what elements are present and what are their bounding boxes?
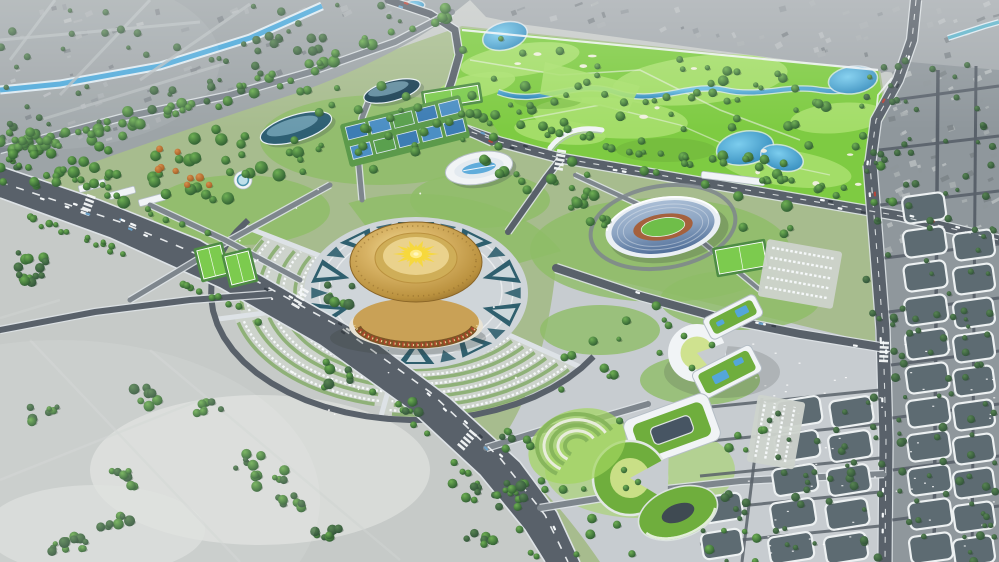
- city-block: [700, 528, 744, 560]
- city-block: [769, 497, 817, 531]
- vehicle: [881, 397, 883, 402]
- city-block: [952, 229, 995, 261]
- vehicle: [882, 513, 884, 518]
- city-block: [952, 433, 995, 465]
- city-block: [905, 362, 950, 395]
- aerial-render-stage: Aerial 3D architectural rendering of a s…: [0, 0, 999, 562]
- sand-bunker: [761, 149, 767, 153]
- vehicle: [869, 192, 872, 197]
- vehicle: [882, 529, 884, 534]
- city-block: [827, 429, 873, 462]
- vehicle: [885, 349, 887, 354]
- city-block: [952, 399, 995, 431]
- city-block: [904, 294, 949, 327]
- vehicle: [874, 192, 877, 197]
- city-block: [902, 226, 947, 259]
- vehicle: [880, 337, 882, 342]
- sand-bunker: [847, 153, 853, 156]
- city-block: [771, 463, 819, 497]
- city-block: [823, 531, 869, 562]
- city-block: [952, 263, 995, 295]
- city-block: [908, 532, 953, 562]
- city-block: [952, 365, 995, 397]
- city-block: [906, 430, 951, 463]
- city-block: [908, 498, 953, 531]
- sand-bunker: [855, 183, 862, 186]
- masterplan-render: [0, 0, 999, 562]
- city-block: [903, 260, 948, 293]
